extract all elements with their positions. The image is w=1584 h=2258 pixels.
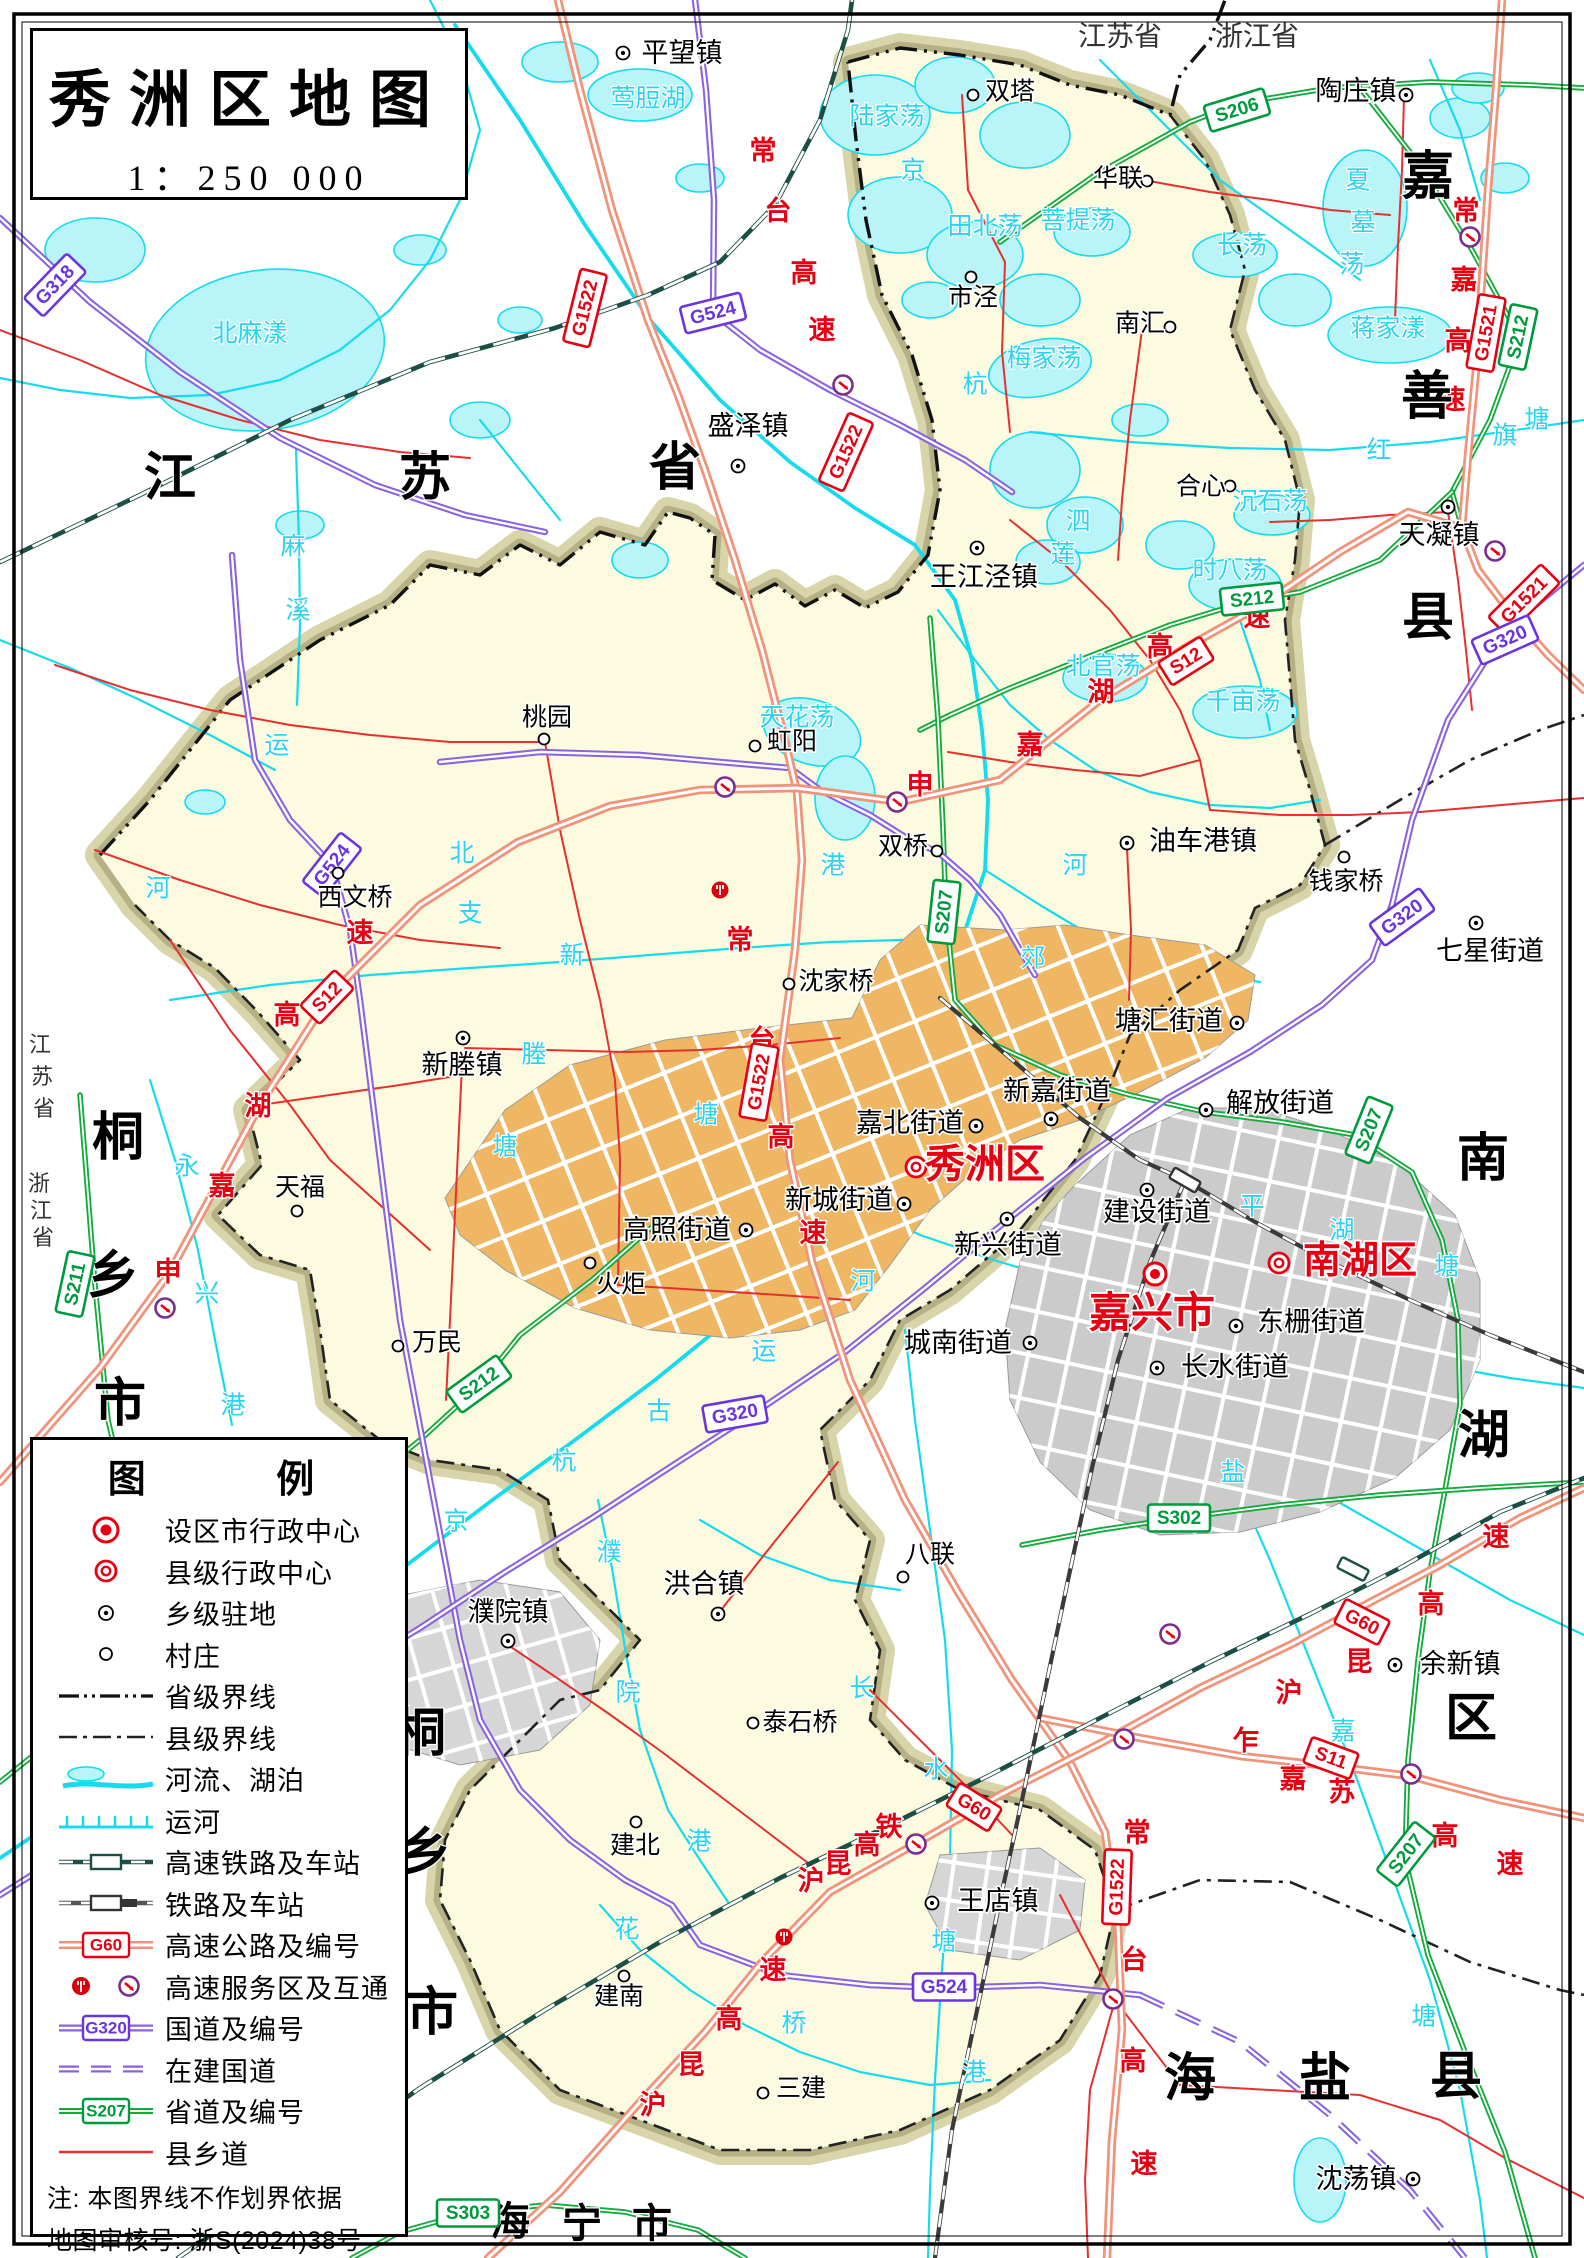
road-name-char: 铁 bbox=[876, 1812, 903, 1842]
region-label: 乡 bbox=[87, 1248, 139, 1305]
legend-note-2: 地图审核号: 浙S(2024)38号 bbox=[47, 2221, 395, 2257]
legend-item-service-interchange: 高速服务区及互通 bbox=[47, 1966, 395, 2008]
legend-label: 高速公路及编号 bbox=[165, 1925, 361, 1964]
street-label: 高照街道 bbox=[623, 1215, 731, 1245]
water-label: 新 bbox=[559, 942, 584, 970]
region-label: 嘉 bbox=[1402, 148, 1454, 206]
legend-label: 国道及编号 bbox=[165, 2008, 305, 2047]
town-label: 盛泽镇 bbox=[708, 411, 789, 441]
town-dot bbox=[1411, 2177, 1415, 2181]
road-name-char: 申 bbox=[907, 770, 934, 800]
legend-symbol bbox=[47, 1596, 165, 1630]
interchange-icon bbox=[834, 376, 853, 395]
town-label: 沈荡镇 bbox=[1316, 2164, 1397, 2194]
village-label: 沈家桥 bbox=[798, 968, 873, 996]
legend-symbol bbox=[47, 1637, 165, 1671]
legend-swatch-county-border bbox=[51, 1720, 161, 1754]
town-label: 王江泾镇 bbox=[930, 562, 1038, 592]
road-name-char: 台 bbox=[1121, 1944, 1148, 1975]
road-name-char: 高 bbox=[1445, 325, 1472, 356]
region-label: 海 bbox=[1164, 2050, 1216, 2108]
village-circle bbox=[898, 1572, 909, 1583]
swatch-shield-code: S207 bbox=[86, 2101, 126, 2120]
town-dot bbox=[1235, 1021, 1239, 1025]
legend-swatch-under-construction bbox=[51, 2052, 161, 2086]
village-circle bbox=[619, 1971, 630, 1982]
region-label: 江 bbox=[144, 450, 196, 507]
water-label: 陆家荡 bbox=[849, 103, 924, 131]
water-label: 河 bbox=[1062, 852, 1087, 880]
water-label: 塍 bbox=[521, 1041, 546, 1069]
legend-item-national: G320国道及编号 bbox=[47, 2007, 395, 2049]
town-dot bbox=[1028, 1341, 1032, 1345]
water-label: 麻 bbox=[280, 533, 305, 561]
town-seat-symbol bbox=[502, 1635, 515, 1648]
legend-item-city-admin: 设区市行政中心 bbox=[47, 1509, 395, 1551]
region-label: 区 bbox=[1445, 1691, 1497, 1748]
town-seat-symbol bbox=[1045, 1113, 1058, 1126]
village-label: 建南 bbox=[594, 1983, 644, 2011]
region-label-small: 省 bbox=[33, 1096, 55, 1121]
village-label: 双桥 bbox=[878, 833, 928, 861]
water-label: 旗 bbox=[1492, 422, 1517, 450]
legend-item-town-seat: 乡级驻地 bbox=[47, 1592, 395, 1634]
village-circle bbox=[292, 1206, 303, 1217]
interchange-icon bbox=[1461, 228, 1480, 247]
road-name-char: 嘉 bbox=[1280, 1764, 1307, 1794]
interchange-icon bbox=[1486, 542, 1505, 561]
village-label: 市泾 bbox=[948, 284, 998, 312]
town-dot bbox=[716, 1612, 720, 1616]
legend-item-prov-border: 省级界线 bbox=[47, 1675, 395, 1717]
region-label-small: 省 bbox=[32, 1225, 54, 1250]
town-label: 平望镇 bbox=[642, 38, 723, 68]
village-label: 西文桥 bbox=[317, 884, 392, 912]
legend-item-canal: 运河 bbox=[47, 1800, 395, 1842]
map-page: { "title": {"main":"秀洲区地图","scale":"1：25… bbox=[0, 0, 1584, 2258]
lake bbox=[185, 790, 225, 814]
water-label: 北麻漾 bbox=[212, 320, 287, 348]
village-circle bbox=[932, 846, 943, 857]
water-label: 莺脰湖 bbox=[610, 85, 685, 113]
road-name-char: 昆 bbox=[678, 2050, 705, 2080]
water-label: 港 bbox=[220, 1392, 245, 1420]
lake bbox=[612, 542, 668, 578]
road-name-char: 常 bbox=[1453, 196, 1480, 226]
street-label: 新兴街道 bbox=[954, 1230, 1062, 1260]
lake bbox=[990, 432, 1080, 508]
admin-label: 嘉兴市 bbox=[1089, 1289, 1215, 1336]
legend-swatch-rail-station bbox=[51, 1886, 161, 1920]
region-label: 南 bbox=[1457, 1130, 1509, 1188]
town-seat-symbol bbox=[1400, 89, 1413, 102]
village-circle bbox=[1142, 176, 1153, 187]
interchange-icon bbox=[1161, 1625, 1180, 1644]
village-circle bbox=[784, 979, 795, 990]
road-name-char: 高 bbox=[791, 257, 818, 288]
village-circle bbox=[968, 90, 979, 101]
town-seat-symbol bbox=[712, 1608, 725, 1621]
sym bbox=[121, 1899, 137, 1907]
legend-symbol: S207 bbox=[47, 2094, 165, 2128]
legend-label: 村庄 bbox=[165, 1635, 221, 1674]
street-label: 嘉北街道 bbox=[856, 1108, 964, 1138]
water-label: 塘 bbox=[693, 1101, 718, 1129]
town-label: 天凝镇 bbox=[1399, 520, 1480, 550]
water-label: 永 bbox=[174, 1153, 199, 1181]
town-dot bbox=[1125, 841, 1129, 845]
legend-items: 设区市行政中心县级行政中心乡级驻地村庄省级界线县级界线河流、湖泊运河高速铁路及车… bbox=[47, 1509, 395, 2173]
road-name-char: 高 bbox=[768, 1121, 795, 1152]
legend-label: 在建国道 bbox=[165, 2050, 277, 2089]
road-shield-s212: S212 bbox=[1220, 582, 1284, 615]
region-label: 市 bbox=[406, 1984, 458, 2042]
legend-swatch-national: G320 bbox=[51, 2011, 161, 2045]
admin-center: 秀洲区 bbox=[906, 1143, 1045, 1187]
region-label: 省 bbox=[649, 439, 701, 497]
sym bbox=[68, 1767, 104, 1781]
street-label: 新城街道 bbox=[785, 1185, 893, 1215]
town-seat-symbol bbox=[1230, 1320, 1243, 1333]
legend-item-rail-station: 铁路及车站 bbox=[47, 1883, 395, 1925]
town-dot bbox=[744, 1228, 748, 1232]
region-label-small: 浙 bbox=[28, 1171, 50, 1196]
water-label: 塘 bbox=[1411, 2003, 1436, 2031]
legend-note-1: 注: 本图界线不作划界依据 bbox=[47, 2179, 395, 2215]
town-seat-symbol bbox=[1024, 1337, 1037, 1350]
road-name-char: 嘉 bbox=[1451, 265, 1478, 295]
water-label: 溪 bbox=[285, 597, 310, 625]
road-name-char: 速 bbox=[347, 918, 374, 948]
water-label: 千亩荡 bbox=[1205, 688, 1280, 716]
lake bbox=[915, 57, 995, 113]
water-label: 长 bbox=[849, 1675, 874, 1703]
town-label: 陶庄镇 bbox=[1316, 76, 1397, 106]
road-name-char: 沪 bbox=[1276, 1678, 1303, 1708]
town-seat-symbol bbox=[1470, 917, 1483, 930]
interchange-icon bbox=[888, 793, 907, 812]
legend-swatch-county-admin bbox=[51, 1554, 161, 1588]
village-circle bbox=[393, 1341, 404, 1352]
water-label: 花 bbox=[614, 1916, 639, 1944]
region-label: 县 bbox=[1430, 2049, 1482, 2106]
page-title: 秀洲区地图 bbox=[33, 49, 465, 139]
road-name-char: 速 bbox=[809, 315, 836, 345]
water-label: 夏 bbox=[1345, 167, 1370, 195]
street-label: 塘汇街道 bbox=[1115, 1006, 1223, 1036]
village-circle bbox=[966, 272, 977, 283]
admin-label: 秀洲区 bbox=[924, 1143, 1045, 1187]
water-label: 郊 bbox=[1020, 945, 1045, 973]
admin-label: 南湖区 bbox=[1303, 1240, 1417, 1282]
water-label: 河 bbox=[145, 875, 170, 903]
water-label: 濮 bbox=[596, 1539, 621, 1567]
water-label: 河 bbox=[850, 1268, 875, 1296]
region-label: 湖 bbox=[1458, 1408, 1510, 1465]
town-dot bbox=[461, 1036, 465, 1040]
legend-label: 县级行政中心 bbox=[165, 1552, 333, 1591]
water-label: 兴 bbox=[194, 1280, 219, 1308]
lake bbox=[1112, 404, 1168, 436]
town-seat-symbol bbox=[1442, 501, 1455, 514]
town-dot bbox=[930, 1901, 934, 1905]
street-label: 城南街道 bbox=[904, 1328, 1012, 1358]
village-label: 合心 bbox=[1176, 473, 1226, 501]
village-label: 南汇 bbox=[1115, 310, 1165, 338]
legend-item-provincial: S207省道及编号 bbox=[47, 2090, 395, 2132]
road-name-char: 速 bbox=[1131, 2149, 1158, 2179]
town-dot bbox=[1049, 1117, 1053, 1121]
region-label: 善 bbox=[1401, 368, 1453, 426]
water-label: 运 bbox=[751, 1338, 776, 1366]
village-circle bbox=[1165, 322, 1176, 333]
village-label: 华联 bbox=[1093, 165, 1143, 193]
village-circle bbox=[1225, 481, 1236, 492]
map-title-box: 秀洲区地图 1：250 000 bbox=[30, 28, 468, 200]
region-label: 县 bbox=[1402, 590, 1454, 647]
village-label: 三建 bbox=[776, 2075, 826, 2103]
water-label: 蒋家漾 bbox=[1350, 315, 1425, 343]
region-label: 市 bbox=[632, 2201, 672, 2246]
water-label: 塘 bbox=[492, 1133, 517, 1161]
legend-swatch-village bbox=[51, 1637, 161, 1671]
water-label: 莲 bbox=[1050, 541, 1075, 569]
sym bbox=[63, 1784, 153, 1786]
town-seat-symbol bbox=[1141, 1184, 1154, 1197]
lake bbox=[1259, 274, 1331, 326]
swatch-shield-code: G320 bbox=[85, 2018, 127, 2037]
town-seat-symbol bbox=[1200, 1104, 1213, 1117]
legend-symbol bbox=[47, 1845, 165, 1879]
village-circle bbox=[758, 2088, 769, 2099]
town-seat-symbol bbox=[926, 1897, 939, 1910]
legend-item-village: 村庄 bbox=[47, 1634, 395, 1676]
legend-swatch-service-interchange bbox=[51, 1969, 161, 2003]
water-label: 沉石荡 bbox=[1232, 488, 1307, 516]
town-label: 油车港镇 bbox=[1149, 826, 1257, 856]
water-label: 盐 bbox=[1220, 1459, 1245, 1487]
legend-swatch-canal bbox=[51, 1803, 161, 1837]
water-label: 墓 bbox=[1350, 209, 1375, 237]
village-label: 钱家桥 bbox=[1308, 868, 1383, 896]
town-label: 新塍镇 bbox=[422, 1050, 503, 1080]
water-label: 古 bbox=[646, 1398, 671, 1426]
legend-symbol bbox=[47, 1886, 165, 1920]
legend-symbol bbox=[47, 2135, 165, 2169]
road-name-char: 高 bbox=[1432, 1820, 1459, 1851]
region-label-small: 浙江省 bbox=[1215, 20, 1299, 51]
lake bbox=[980, 102, 1070, 168]
interchange-icon bbox=[907, 1835, 926, 1854]
water-label: 院 bbox=[615, 1679, 640, 1707]
road-name-char: 昆 bbox=[1346, 1647, 1373, 1677]
lake bbox=[394, 235, 446, 265]
road-shield-s302: S302 bbox=[1148, 1505, 1210, 1532]
legend-label: 设区市行政中心 bbox=[165, 1510, 361, 1549]
town-label: 余新镇 bbox=[1420, 1649, 1501, 1679]
legend-label: 县乡道 bbox=[165, 2133, 249, 2172]
interchange-icon bbox=[1104, 1990, 1123, 2009]
legend-title: 图 例 bbox=[47, 1448, 395, 1503]
region-label-small: 江苏省 bbox=[1078, 20, 1162, 51]
road-name-char: 常 bbox=[1124, 1818, 1151, 1848]
road-name-char: 高 bbox=[1418, 1588, 1445, 1619]
town-seat-symbol bbox=[1121, 837, 1134, 850]
legend-label: 铁路及车站 bbox=[165, 1884, 305, 1923]
town-dot bbox=[1145, 1188, 1149, 1192]
village-label: 天福 bbox=[275, 1174, 325, 1202]
legend-label: 运河 bbox=[165, 1801, 221, 1840]
lake bbox=[522, 42, 598, 82]
sym bbox=[91, 1896, 121, 1910]
water-label: 杭 bbox=[551, 1448, 576, 1476]
sym bbox=[104, 1611, 108, 1615]
village-label: 建北 bbox=[610, 1832, 660, 1860]
road-name-char: 速 bbox=[1483, 1522, 1510, 1552]
town-dot bbox=[506, 1639, 510, 1643]
water-label: 泗 bbox=[1065, 508, 1090, 536]
town-seat-symbol bbox=[1151, 1362, 1164, 1375]
shield-code: G524 bbox=[921, 1977, 968, 1998]
legend-symbol: G60 bbox=[47, 1928, 165, 1962]
legend-swatch-hsr-station bbox=[51, 1845, 161, 1879]
legend-symbol bbox=[47, 2052, 165, 2086]
town-seat-symbol bbox=[457, 1032, 470, 1045]
legend-item-river-lake: 河流、湖泊 bbox=[47, 1758, 395, 1800]
water-label: 时八荡 bbox=[1192, 557, 1267, 585]
road-name-char: 高 bbox=[274, 999, 301, 1030]
village-label: 火炬 bbox=[596, 1271, 646, 1299]
road-name-char: 湖 bbox=[245, 1091, 272, 1121]
sym bbox=[102, 1567, 110, 1575]
water-label: 田北荡 bbox=[947, 213, 1022, 241]
legend-label: 高速服务区及互通 bbox=[165, 1967, 389, 2006]
lake bbox=[498, 307, 542, 333]
legend-swatch-expressway: G60 bbox=[51, 1928, 161, 1962]
map-scale: 1：250 000 bbox=[33, 149, 465, 201]
water-label: 塘 bbox=[931, 1928, 956, 1956]
town-dot bbox=[1234, 1324, 1238, 1328]
legend-label: 河流、湖泊 bbox=[165, 1759, 305, 1798]
road-shield-g1522: G1522 bbox=[1102, 1849, 1132, 1924]
water-label: 运 bbox=[264, 732, 289, 760]
legend-swatch-provincial: S207 bbox=[51, 2094, 161, 2128]
road-name-char: 沪 bbox=[798, 1866, 825, 1896]
water-label: 梅家荡 bbox=[1006, 345, 1081, 373]
shield-code: G1522 bbox=[1106, 1858, 1129, 1916]
town-dot bbox=[736, 464, 740, 468]
town-place: 新城街道 bbox=[785, 1185, 911, 1215]
street-label: 建设街道 bbox=[1103, 1197, 1211, 1227]
street-label: 七星街道 bbox=[1436, 936, 1544, 966]
county-admin-inner bbox=[1275, 1259, 1283, 1267]
village-circle bbox=[750, 741, 761, 752]
legend-label: 省级界线 bbox=[165, 1676, 277, 1715]
legend-label: 高速铁路及车站 bbox=[165, 1842, 361, 1881]
road-name-char: 嘉 bbox=[1017, 730, 1044, 760]
water-label: 荡 bbox=[1339, 251, 1364, 279]
road-name-char: 湖 bbox=[1088, 677, 1115, 707]
town-seat-symbol bbox=[1001, 1213, 1014, 1226]
village-circle bbox=[748, 1718, 759, 1729]
road-name-char: 昆 bbox=[825, 1849, 852, 1879]
legend-swatch-county-road bbox=[51, 2135, 161, 2169]
road-name-char: 速 bbox=[1497, 1849, 1524, 1879]
sym bbox=[101, 1524, 112, 1535]
road-shield-s207: S207 bbox=[927, 880, 960, 944]
street-label: 长水街道 bbox=[1181, 1352, 1289, 1382]
town-seat-symbol bbox=[1407, 2173, 1420, 2186]
village-label: 八联 bbox=[905, 1541, 955, 1569]
city-admin-dot bbox=[1150, 1269, 1160, 1279]
village-label: 虹阳 bbox=[767, 728, 817, 756]
water-label: 北 bbox=[449, 840, 474, 868]
road-name-char: 乍 bbox=[1233, 1725, 1260, 1756]
road-name-char: 常 bbox=[750, 136, 777, 166]
legend-label: 省道及编号 bbox=[165, 2091, 305, 2130]
water-label: 京 bbox=[443, 1508, 468, 1536]
interchange-icon bbox=[1115, 1730, 1134, 1749]
legend-item-expressway: G60高速公路及编号 bbox=[47, 1924, 395, 1966]
legend-item-county-border: 县级界线 bbox=[47, 1717, 395, 1759]
legend-item-hsr-station: 高速铁路及车站 bbox=[47, 1841, 395, 1883]
village-circle bbox=[1339, 852, 1350, 863]
town-dot bbox=[621, 51, 625, 55]
sym bbox=[91, 1855, 121, 1869]
town-seat-symbol bbox=[1231, 1017, 1244, 1030]
town-seat-symbol bbox=[732, 460, 745, 473]
town-seat-symbol bbox=[898, 1198, 911, 1211]
county-admin-inner bbox=[912, 1163, 920, 1171]
town-dot bbox=[974, 1124, 978, 1128]
water-label: 塘 bbox=[1524, 406, 1549, 434]
swatch-shield-code: G60 bbox=[90, 1935, 122, 1954]
village-label: 泰石桥 bbox=[762, 1709, 837, 1737]
town-place: 嘉北街道 bbox=[856, 1108, 983, 1138]
sym bbox=[100, 1648, 112, 1660]
lake bbox=[676, 164, 724, 192]
legend-symbol: G320 bbox=[47, 2011, 165, 2045]
water-label: 桥 bbox=[781, 2010, 806, 2038]
shield-code: S302 bbox=[1157, 1508, 1201, 1529]
town-label: 濮院镇 bbox=[468, 1597, 549, 1627]
lake bbox=[1000, 274, 1080, 326]
village-circle bbox=[539, 734, 550, 745]
legend-item-under-construction: 在建国道 bbox=[47, 2049, 395, 2091]
town-dot bbox=[975, 546, 979, 550]
town-dot bbox=[1474, 921, 1478, 925]
village-circle bbox=[333, 868, 344, 879]
legend-swatch-river-lake bbox=[51, 1762, 161, 1796]
town-dot bbox=[1155, 1366, 1159, 1370]
region-label: 市 bbox=[94, 1375, 146, 1433]
legend-item-county-road: 县乡道 bbox=[47, 2132, 395, 2174]
street-label: 新嘉街道 bbox=[1003, 1076, 1111, 1106]
village-circle bbox=[585, 1258, 596, 1269]
legend-swatch-prov-border bbox=[51, 1679, 161, 1713]
town-dot bbox=[1204, 1108, 1208, 1112]
road-name-char: 速 bbox=[800, 1218, 827, 1248]
region-label: 桐 bbox=[92, 1109, 144, 1167]
legend-label: 县级界线 bbox=[165, 1718, 277, 1757]
town-seat-symbol bbox=[971, 542, 984, 555]
legend-symbol bbox=[47, 1969, 165, 2003]
street-label: 解放街道 bbox=[1226, 1088, 1334, 1118]
road-name-char: 常 bbox=[727, 925, 754, 955]
legend-symbol bbox=[47, 1762, 165, 1796]
region-label: 盐 bbox=[1299, 2050, 1351, 2108]
town-dot bbox=[1404, 93, 1408, 97]
